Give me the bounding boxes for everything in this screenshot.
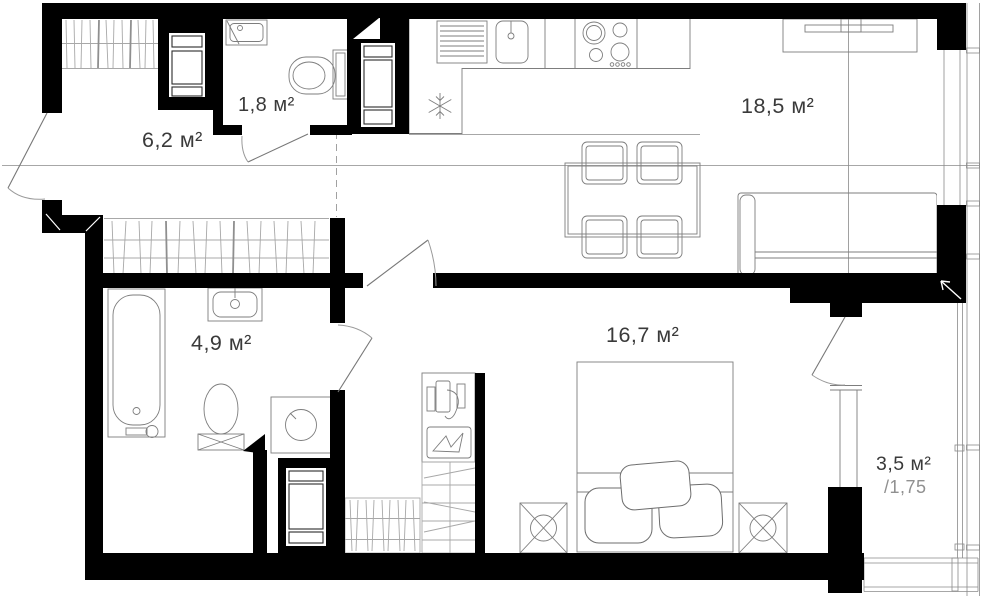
cooktop-icon bbox=[583, 22, 630, 66]
wall-left-upper bbox=[42, 3, 62, 113]
wall-bottom bbox=[85, 553, 864, 580]
balcony-door bbox=[812, 317, 845, 385]
wall-bathroom-left bbox=[85, 215, 103, 580]
wc-door bbox=[242, 134, 308, 162]
bathroom-door bbox=[338, 325, 372, 392]
dining-table bbox=[565, 163, 700, 237]
wall-wc-bottom-right bbox=[310, 125, 352, 135]
room-label-hallway: 6,2 м² bbox=[142, 128, 203, 152]
entrance-door bbox=[8, 113, 47, 199]
wall-wc-bottom-left bbox=[213, 125, 242, 135]
room-label-bedroom: 16,7 м² bbox=[606, 323, 679, 347]
toilet-icon bbox=[198, 384, 244, 450]
wall-bedroom-partition bbox=[475, 373, 485, 553]
wall-right-top bbox=[937, 3, 966, 50]
room-label-kitchen-living: 18,5 м² bbox=[741, 94, 814, 118]
balcony-glazing bbox=[864, 303, 978, 592]
floor-plan: 6,2 м² 1,8 м² 18,5 м² 4,9 м² 16,7 м² 3,5… bbox=[0, 0, 982, 600]
corridor-wardrobe bbox=[104, 219, 329, 275]
pillow bbox=[619, 460, 692, 511]
hallway-wardrobe bbox=[60, 20, 158, 69]
tv-console bbox=[783, 19, 917, 52]
living-window bbox=[937, 50, 966, 205]
refrigerator-snowflake-icon bbox=[429, 93, 452, 119]
wall-right-thick bbox=[790, 273, 966, 303]
bedroom-door bbox=[367, 240, 436, 286]
floor-plan-svg: 6,2 м² 1,8 м² 18,5 м² 4,9 м² 16,7 м² 3,5… bbox=[0, 0, 982, 600]
kitchen-sink-icon bbox=[496, 21, 528, 63]
wall-living-bedroom bbox=[433, 273, 790, 288]
ventilation-shaft bbox=[347, 18, 409, 134]
wc-toilet-icon bbox=[289, 50, 348, 99]
bathroom-inner-door bbox=[243, 434, 265, 454]
wc-sink-icon bbox=[226, 20, 267, 45]
washing-machine-icon bbox=[271, 397, 332, 453]
wall-corridor-right bbox=[330, 218, 345, 323]
drying-rack-icon bbox=[437, 21, 487, 63]
wall-top bbox=[55, 3, 966, 19]
wall-balcony-left bbox=[828, 487, 862, 593]
room-label-balcony-coefficient: /1,75 bbox=[884, 477, 927, 497]
wall-right-mid bbox=[937, 205, 966, 275]
nightstand-lamp-icon bbox=[520, 503, 567, 553]
sofa bbox=[738, 193, 937, 277]
wall-bathroom-east bbox=[253, 450, 267, 580]
wardrobe-hanging-rail bbox=[345, 498, 420, 553]
wall-balcony-nib bbox=[830, 303, 862, 317]
balcony-window bbox=[830, 386, 862, 488]
nightstand-lamp-icon bbox=[739, 503, 787, 553]
bathroom-sink-icon bbox=[208, 284, 262, 321]
room-label-bathroom: 4,9 м² bbox=[191, 331, 252, 355]
facade-glazing bbox=[967, 3, 980, 596]
ventilation-shaft bbox=[158, 18, 215, 110]
wardrobe-shelves bbox=[422, 462, 477, 553]
bathtub-icon bbox=[108, 289, 165, 438]
dresser bbox=[422, 373, 475, 462]
wall-bathroom-top bbox=[85, 273, 363, 288]
ventilation-shaft bbox=[278, 458, 334, 554]
room-label-balcony: 3,5 м² bbox=[876, 453, 931, 475]
room-label-wc: 1,8 м² bbox=[238, 94, 295, 116]
